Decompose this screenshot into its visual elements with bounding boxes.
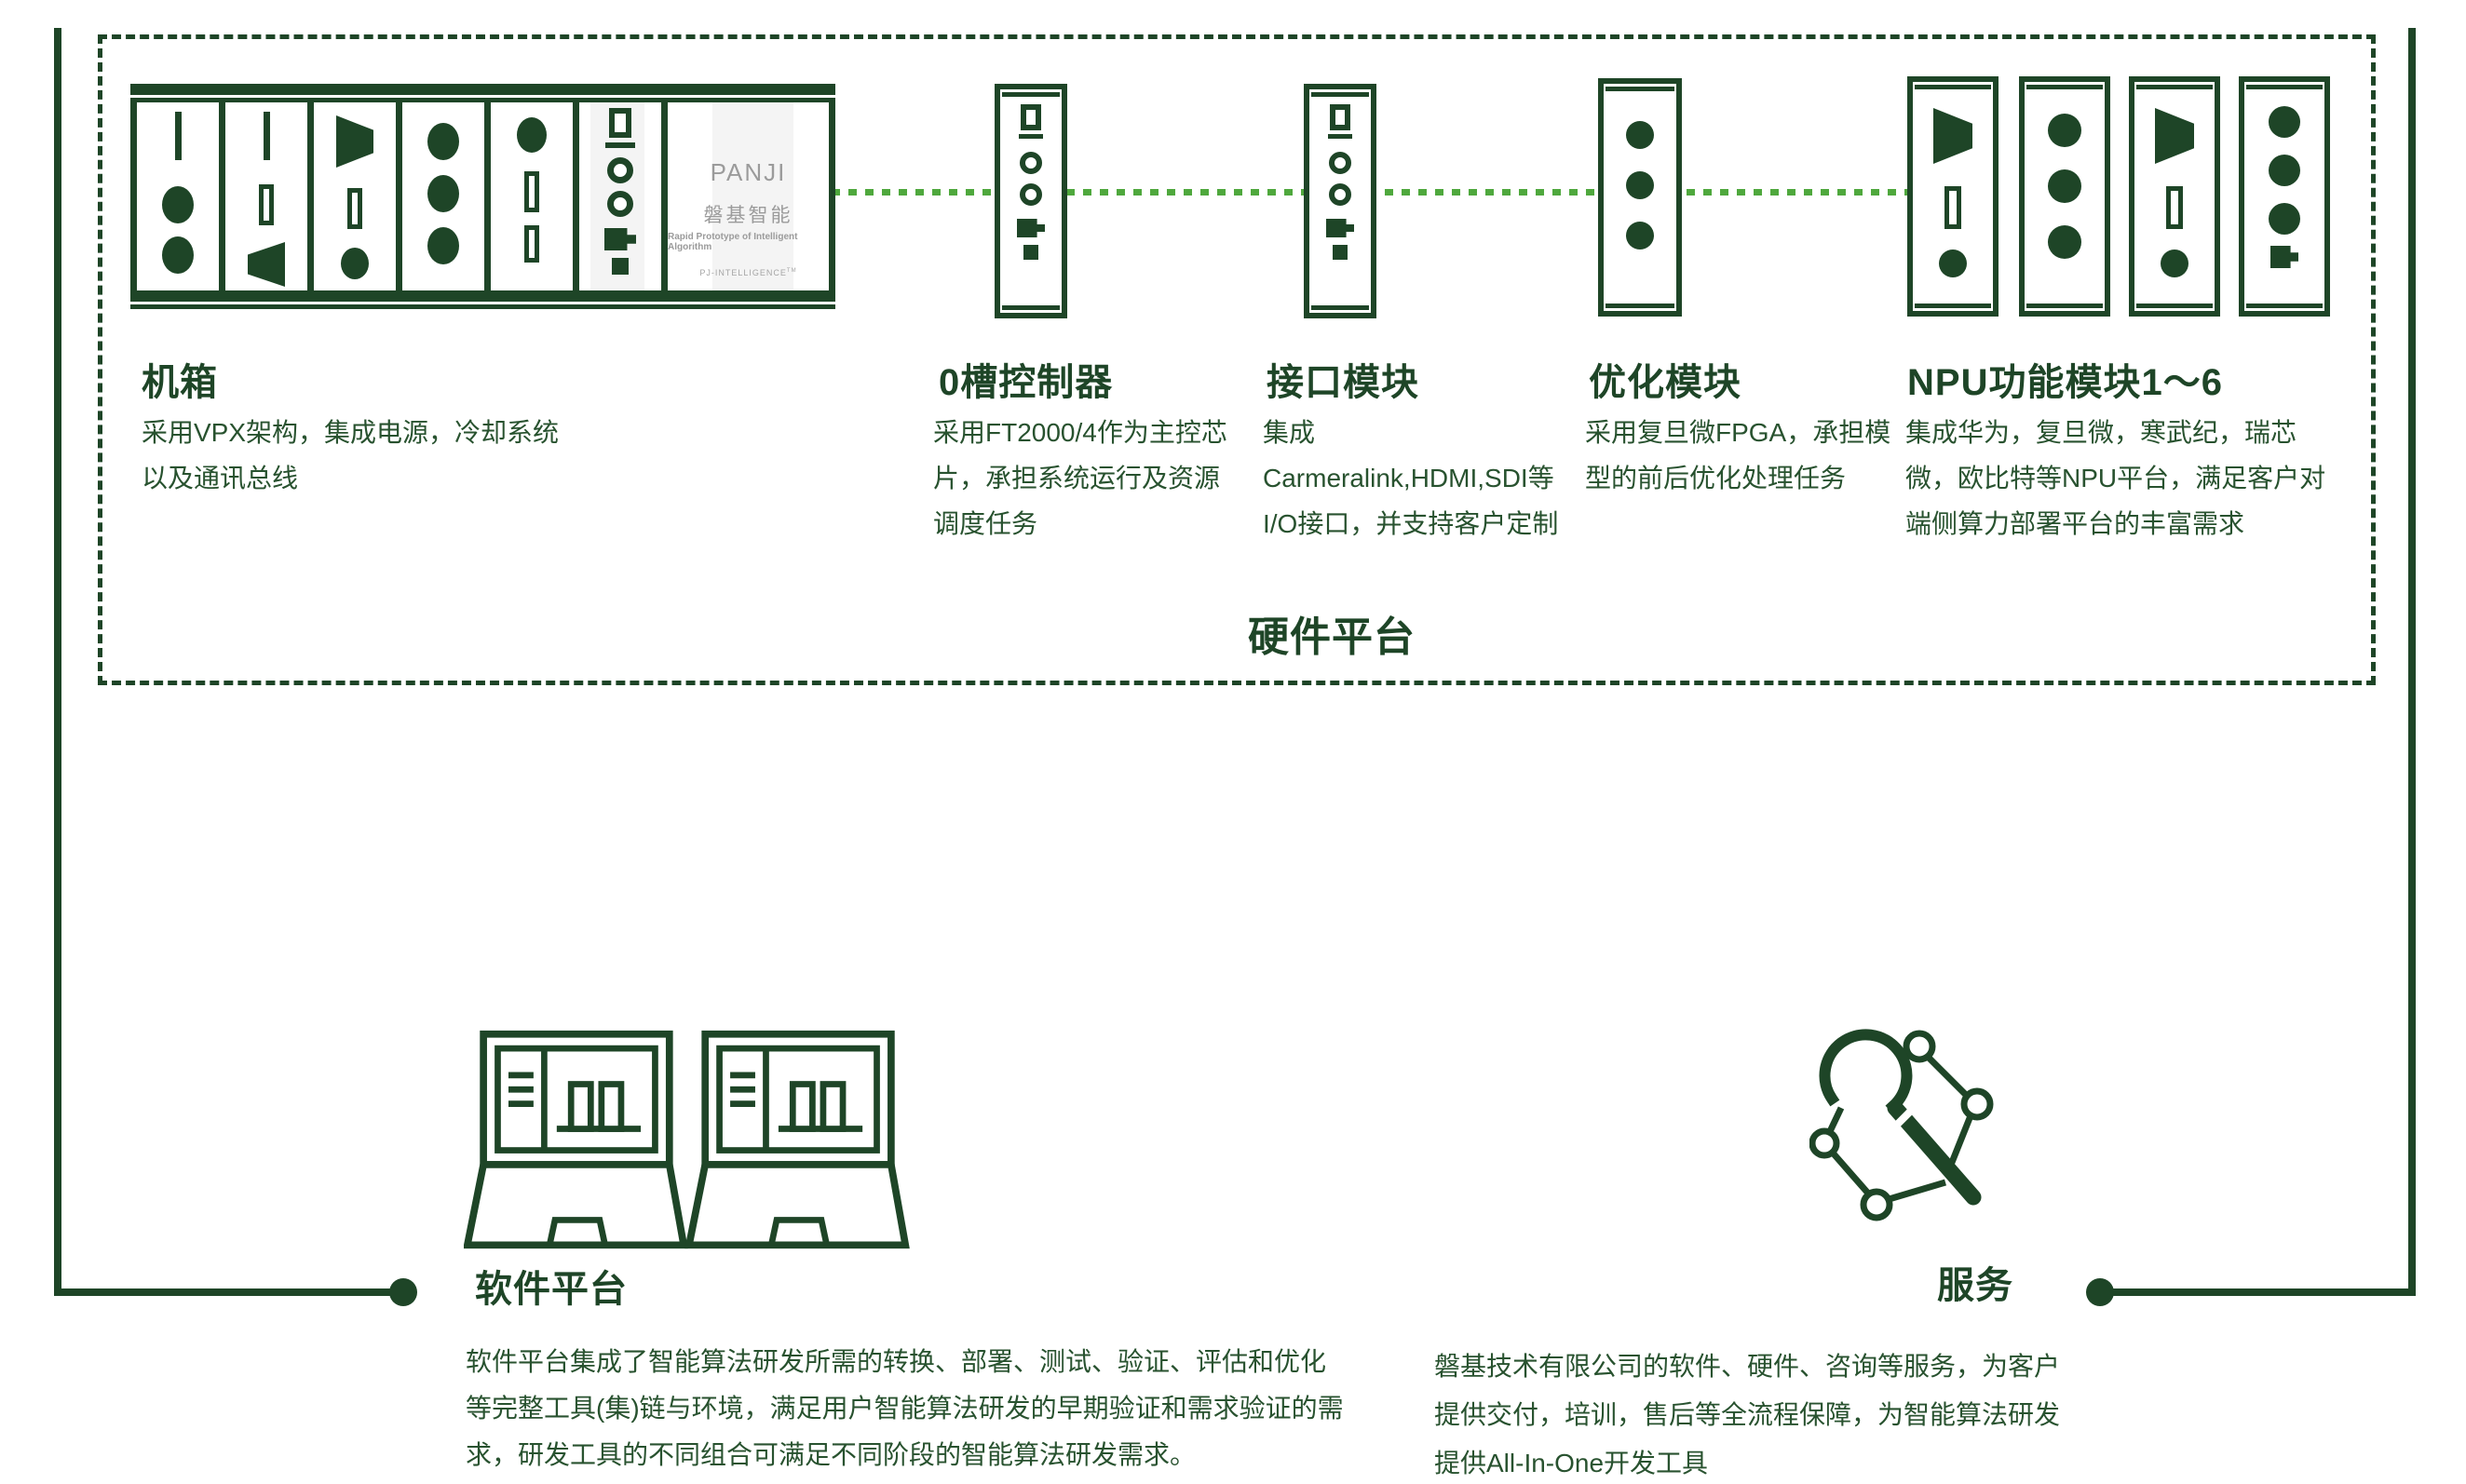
npu-module-1-illustration bbox=[1907, 76, 1999, 317]
chassis-slot-2 bbox=[225, 102, 314, 290]
hardware-platform-label: 硬件平台 bbox=[1248, 603, 1416, 663]
chassis-slots: PANJI 磐基智能 Rapid Prototype of Intelligen… bbox=[130, 102, 835, 290]
square-port-icon bbox=[1333, 245, 1348, 260]
brand-name: PANJI bbox=[711, 158, 787, 187]
optimization-module-title: 优化模块 bbox=[1589, 352, 1741, 406]
chassis-illustration: PANJI 磐基智能 Rapid Prototype of Intelligen… bbox=[130, 84, 835, 309]
ring-connector-icon bbox=[1329, 183, 1351, 206]
chassis-title: 机箱 bbox=[142, 352, 218, 406]
chassis-bottom-rail bbox=[130, 290, 835, 309]
interface-module-illustration bbox=[1304, 84, 1376, 318]
round-port-icon bbox=[1626, 121, 1654, 149]
slot-bar-icon bbox=[264, 112, 270, 160]
round-port-icon bbox=[2048, 169, 2081, 203]
socket-port-icon bbox=[1944, 186, 1961, 229]
port-underline-icon bbox=[1019, 134, 1043, 139]
round-port-icon bbox=[2048, 114, 2081, 147]
controller-module-title: 0槽控制器 bbox=[939, 352, 1113, 406]
slot-bar-icon bbox=[175, 112, 182, 160]
service-title: 服务 bbox=[1937, 1255, 2013, 1309]
npu-module-4-illustration bbox=[2239, 76, 2330, 317]
optimization-module-desc: 采用复旦微FPGA，承担模型的前后优化处理任务 bbox=[1585, 410, 1892, 501]
round-port-icon bbox=[2269, 155, 2300, 186]
chassis-slot-4 bbox=[402, 102, 491, 290]
socket-port-icon bbox=[2166, 186, 2183, 229]
port-underline-icon bbox=[605, 142, 635, 148]
ring-connector-icon bbox=[607, 157, 633, 183]
ring-connector-icon bbox=[1020, 152, 1042, 174]
round-port-icon bbox=[2269, 106, 2300, 138]
plug-connector-icon bbox=[1017, 219, 1045, 237]
npu-module-3-illustration bbox=[2129, 76, 2220, 317]
npu-module-title: NPU功能模块1～6 bbox=[1907, 352, 2223, 406]
display-port-icon bbox=[609, 108, 631, 138]
trapezoid-port-icon bbox=[1933, 108, 1972, 164]
interface-module-title: 接口模块 bbox=[1267, 352, 1419, 406]
round-port-icon bbox=[1626, 171, 1654, 199]
socket-port-icon bbox=[524, 171, 539, 212]
service-desc: 磐基技术有限公司的软件、硬件、咨询等服务，为客户提供交付，培训，售后等全流程保障… bbox=[1434, 1342, 2077, 1484]
chassis-slot-brand-panel: PANJI 磐基智能 Rapid Prototype of Intelligen… bbox=[668, 102, 829, 290]
port-underline-icon bbox=[1328, 134, 1352, 139]
ring-connector-icon bbox=[1020, 183, 1042, 206]
round-port-icon bbox=[1626, 222, 1654, 250]
round-port-icon bbox=[427, 175, 459, 212]
chassis-slot-5 bbox=[491, 102, 579, 290]
left-connector-endpoint-dot bbox=[389, 1278, 417, 1306]
right-connector-horizontal-line bbox=[2101, 1288, 2416, 1296]
service-icon bbox=[1809, 1022, 2007, 1236]
round-port-icon bbox=[341, 248, 369, 279]
trapezoid-port-icon bbox=[2155, 108, 2194, 164]
right-connector-vertical-line bbox=[2408, 28, 2416, 1296]
chassis-slot-controller bbox=[579, 102, 668, 290]
left-connector-horizontal-line bbox=[54, 1288, 397, 1296]
software-platform-title: 软件平台 bbox=[475, 1259, 628, 1313]
plug-connector-icon bbox=[1326, 219, 1354, 237]
chassis-slot-3 bbox=[314, 102, 402, 290]
left-connector-vertical-line bbox=[54, 28, 61, 1296]
socket-port-icon bbox=[524, 225, 539, 263]
brand-name-cn: 磐基智能 bbox=[704, 200, 793, 228]
round-port-icon bbox=[517, 117, 547, 153]
chassis-top-rail bbox=[130, 84, 835, 102]
interface-module-desc: 集成Carmeralink,HDMI,SDI等I/O接口，并支持客户定制 bbox=[1263, 410, 1561, 546]
brand-tagline: Rapid Prototype of Intelligent Algorithm bbox=[668, 232, 829, 252]
software-platform-desc: 软件平台集成了智能算法研发所需的转换、部署、测试、验证、评估和优化等完整工具(集… bbox=[466, 1339, 1350, 1478]
software-platform-icon bbox=[464, 1024, 911, 1257]
round-port-icon bbox=[2161, 250, 2188, 277]
laptop-icon bbox=[689, 1034, 905, 1246]
socket-port-icon bbox=[259, 184, 274, 225]
plug-connector-icon bbox=[2270, 246, 2298, 268]
controller-module-desc: 采用FT2000/4作为主控芯片，承担系统运行及资源调度任务 bbox=[933, 410, 1240, 546]
display-port-icon bbox=[1330, 104, 1350, 130]
round-port-icon bbox=[1939, 250, 1967, 277]
optimization-module-illustration bbox=[1598, 78, 1682, 317]
square-port-icon bbox=[612, 258, 629, 275]
round-port-icon bbox=[427, 227, 459, 264]
round-port-icon bbox=[2048, 225, 2081, 259]
right-connector-endpoint-dot bbox=[2086, 1278, 2114, 1306]
ring-connector-icon bbox=[607, 191, 633, 217]
chassis-desc: 采用VPX架构，集成电源，冷却系统以及通讯总线 bbox=[142, 410, 579, 501]
npu-module-2-illustration bbox=[2019, 76, 2110, 317]
round-port-icon bbox=[162, 186, 194, 223]
brand-block: PANJI 磐基智能 Rapid Prototype of Intelligen… bbox=[668, 102, 829, 290]
npu-module-desc: 集成华为，复旦微，寒武纪，瑞芯微，欧比特等NPU平台，满足客户对端侧算力部署平台… bbox=[1905, 410, 2334, 546]
diagram-canvas: PANJI 磐基智能 Rapid Prototype of Intelligen… bbox=[0, 0, 2466, 1484]
laptop-icon bbox=[467, 1034, 684, 1246]
round-port-icon bbox=[162, 236, 194, 274]
brand-footer: PJ-INTELLIGENCETM bbox=[699, 268, 796, 277]
display-port-icon bbox=[1021, 104, 1041, 130]
trapezoid-port-icon bbox=[336, 115, 373, 168]
socket-port-icon bbox=[347, 188, 362, 229]
chassis-slot-1 bbox=[137, 102, 225, 290]
round-port-icon bbox=[427, 123, 459, 160]
square-port-icon bbox=[1023, 245, 1038, 260]
trapezoid-port-icon bbox=[248, 242, 285, 287]
round-port-icon bbox=[2269, 203, 2300, 235]
controller-module-illustration bbox=[995, 84, 1067, 318]
ring-connector-icon bbox=[1329, 152, 1351, 174]
